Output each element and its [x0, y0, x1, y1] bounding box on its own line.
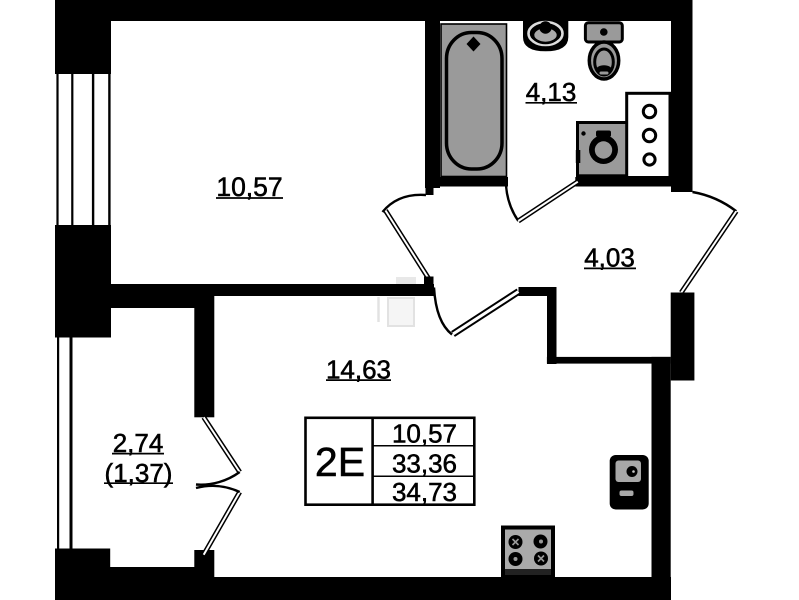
svg-text:10,57: 10,57: [392, 419, 457, 449]
svg-text:33,36: 33,36: [392, 448, 457, 478]
svg-text:2E: 2E: [315, 439, 365, 485]
svg-text:34,73: 34,73: [392, 477, 457, 507]
